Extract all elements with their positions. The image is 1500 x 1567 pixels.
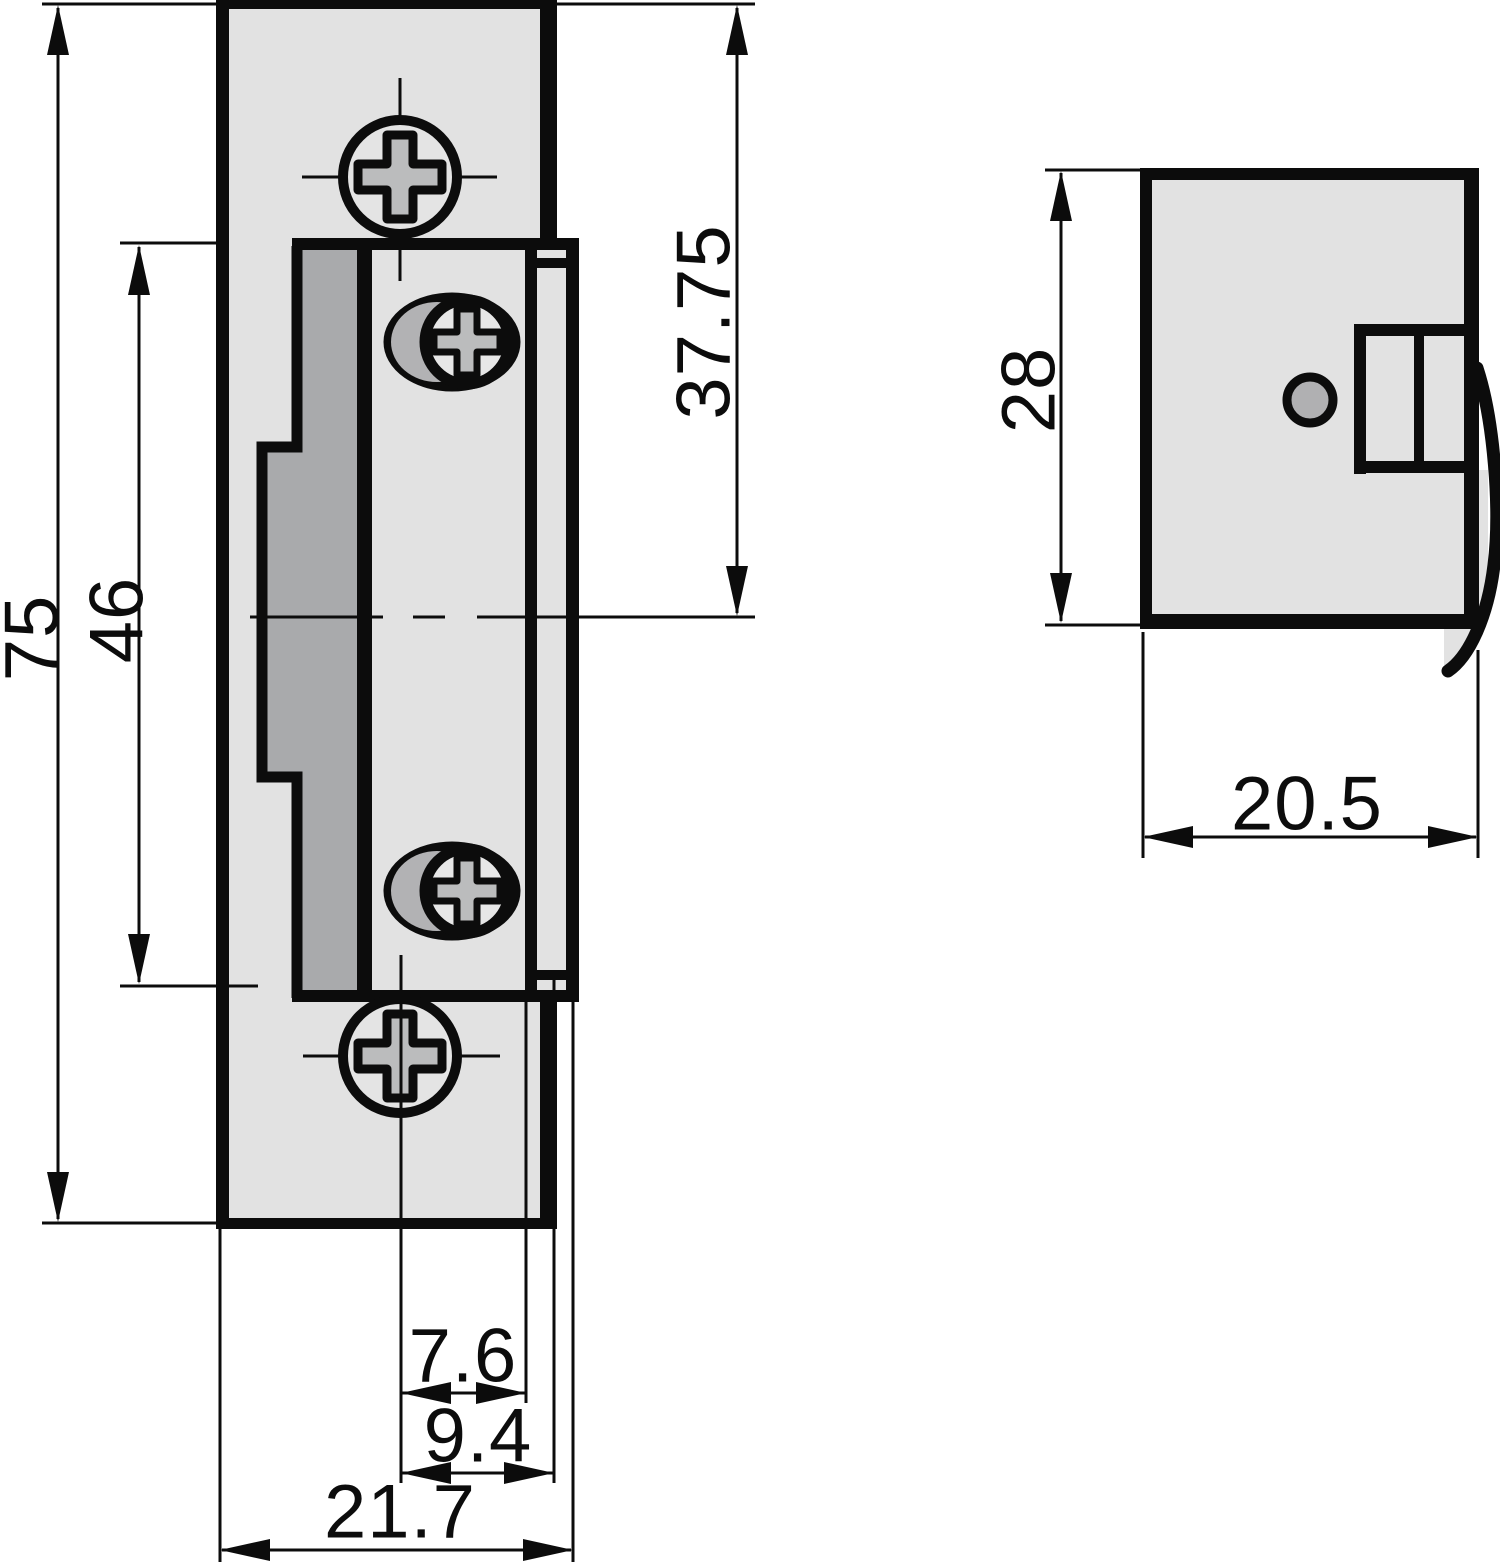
dim-overall-height: 75 (0, 5, 75, 1222)
front-view (216, 0, 755, 1229)
arrowhead-down-icon (128, 934, 150, 984)
latch-fill (1360, 330, 1464, 463)
drawing-svg: 75 46 37.75 7.6 (0, 0, 1500, 1567)
cavity-divider-line (357, 243, 372, 1001)
lip-right-edge (566, 238, 579, 1002)
dim-top-to-centerline: 37.75 (662, 5, 749, 616)
dim-centerline-to-face-edge: 7.6 (401, 1314, 526, 1405)
dim-label-46: 46 (75, 577, 160, 664)
face-lip-divider (525, 243, 537, 1001)
arrowhead-up-icon (1050, 171, 1072, 221)
dim-label-28: 28 (987, 347, 1072, 434)
dim-label-9-4: 9.4 (424, 1394, 533, 1479)
upper-cam-screw (389, 298, 515, 386)
lip-top-step (537, 258, 579, 268)
arrowhead-down-icon (726, 566, 748, 616)
side-left-edge (1140, 168, 1152, 629)
latch-top-edge (1354, 324, 1466, 336)
faceplate-bottom-edge (216, 1218, 557, 1229)
arrowhead-down-icon (47, 1172, 69, 1222)
side-top-edge (1140, 168, 1479, 180)
arrowhead-left-icon (1143, 826, 1193, 848)
latch-bottom-edge (1354, 461, 1466, 473)
side-view (1140, 168, 1497, 671)
dim-side-height: 28 (987, 170, 1141, 625)
latch-divider (1414, 324, 1424, 473)
technical-drawing: 75 46 37.75 7.6 (0, 0, 1500, 1567)
dim-label-37-75: 37.75 (662, 224, 747, 419)
side-bottom-edge (1140, 614, 1479, 629)
arrowhead-up-icon (47, 5, 69, 55)
lip-bottom-step (525, 970, 570, 980)
latch-left-edge (1354, 324, 1366, 474)
dim-side-depth: 20.5 (1143, 632, 1478, 858)
arrowhead-right-icon (1428, 826, 1478, 848)
dim-label-20-5: 20.5 (1231, 762, 1383, 847)
dim-label-75: 75 (0, 595, 75, 682)
side-right-edge (1464, 168, 1479, 629)
faceplate-left-edge (216, 0, 229, 1229)
dim-label-7-6: 7.6 (409, 1314, 518, 1399)
arrowhead-down-icon (1050, 573, 1072, 623)
arrowhead-up-icon (726, 5, 748, 55)
arrowhead-right-icon (523, 1539, 573, 1561)
arrowhead-up-icon (128, 245, 150, 295)
dim-label-21-7: 21.7 (324, 1470, 476, 1555)
lower-cam-screw (389, 847, 515, 935)
arrowhead-left-icon (220, 1539, 270, 1561)
dim-overall-width: 21.7 (220, 1470, 573, 1562)
latch-block (1354, 324, 1466, 474)
pivot-hole (1287, 377, 1333, 423)
